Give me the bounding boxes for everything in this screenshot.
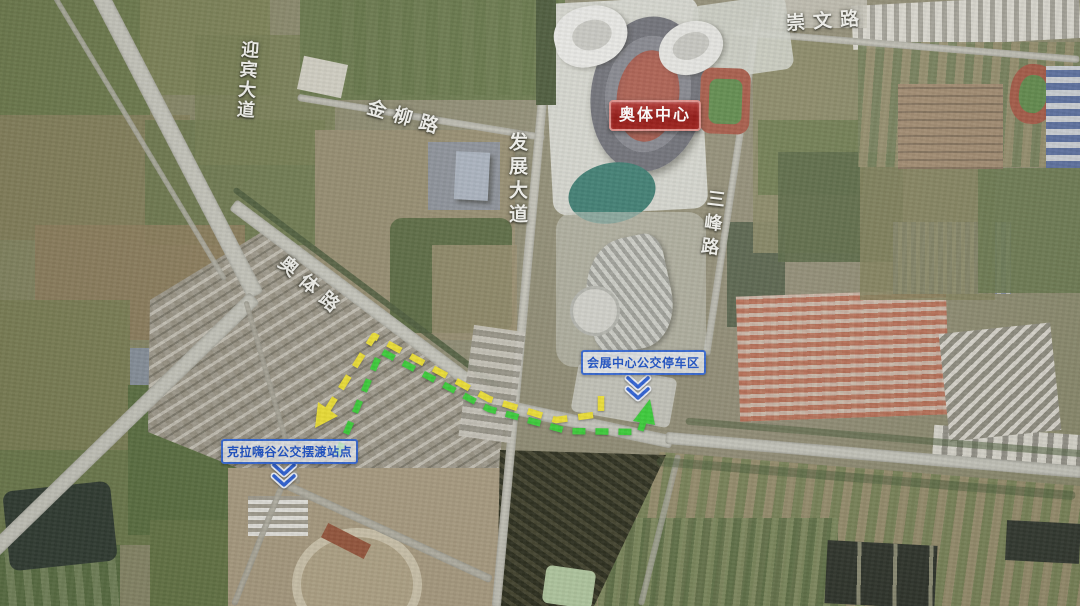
trees-strip [536, 0, 556, 105]
station-label-convention-parking: 会展中心公交停车区 [581, 350, 706, 375]
olympic-center-badge: 奥体中心 [609, 100, 701, 131]
green-field [978, 168, 1080, 293]
chevron-down-icon [270, 462, 298, 494]
road-label-chongwen-road: 崇文路 [785, 3, 868, 36]
white-roof-village [939, 322, 1062, 441]
road-label-yingbin-avenue: 迎宾大道 [231, 39, 263, 121]
satellite-map: 迎宾大道 金柳路 发展大道 崇文路 三峰路 奥体路 奥体中心 会展中心公交停车区… [0, 0, 1080, 606]
farmland-patch [860, 165, 995, 300]
pond-green [542, 565, 597, 606]
fish-ponds [824, 540, 937, 606]
farmland-strips [330, 0, 560, 95]
bare-land [432, 245, 517, 333]
farm-green-strips [598, 518, 838, 606]
village-houses [898, 84, 1003, 169]
highrise-building [454, 151, 490, 201]
road-label-fazhan-avenue: 发展大道 [503, 132, 530, 228]
station-label-shuttle-stop: 克拉嗨谷公交摆渡站点 [221, 439, 358, 464]
track-infield [708, 78, 743, 124]
convention-rotunda [570, 286, 620, 336]
red-roof-village [736, 289, 950, 421]
chevron-down-icon [624, 375, 652, 407]
fish-ponds [1005, 520, 1080, 564]
blue-buildings [1046, 66, 1080, 168]
